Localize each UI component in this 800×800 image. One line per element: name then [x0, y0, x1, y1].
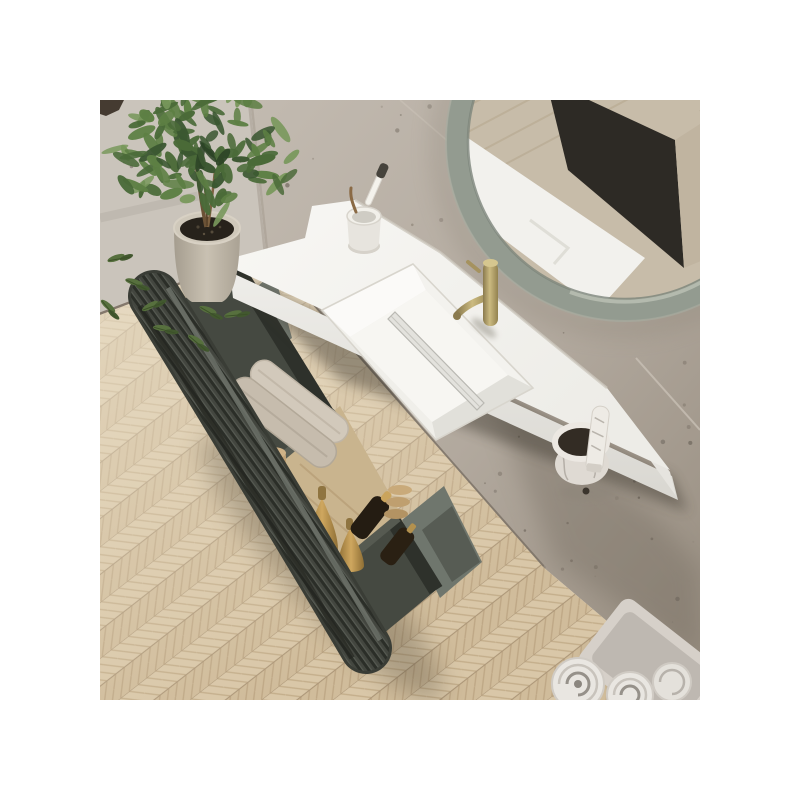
- towel-roll: [653, 663, 691, 700]
- small-cap: [583, 488, 590, 495]
- page-background: [0, 0, 800, 800]
- bamboo-stack: [384, 485, 412, 519]
- bathroom-product-photo: [100, 100, 700, 700]
- towel-roll: [552, 658, 604, 700]
